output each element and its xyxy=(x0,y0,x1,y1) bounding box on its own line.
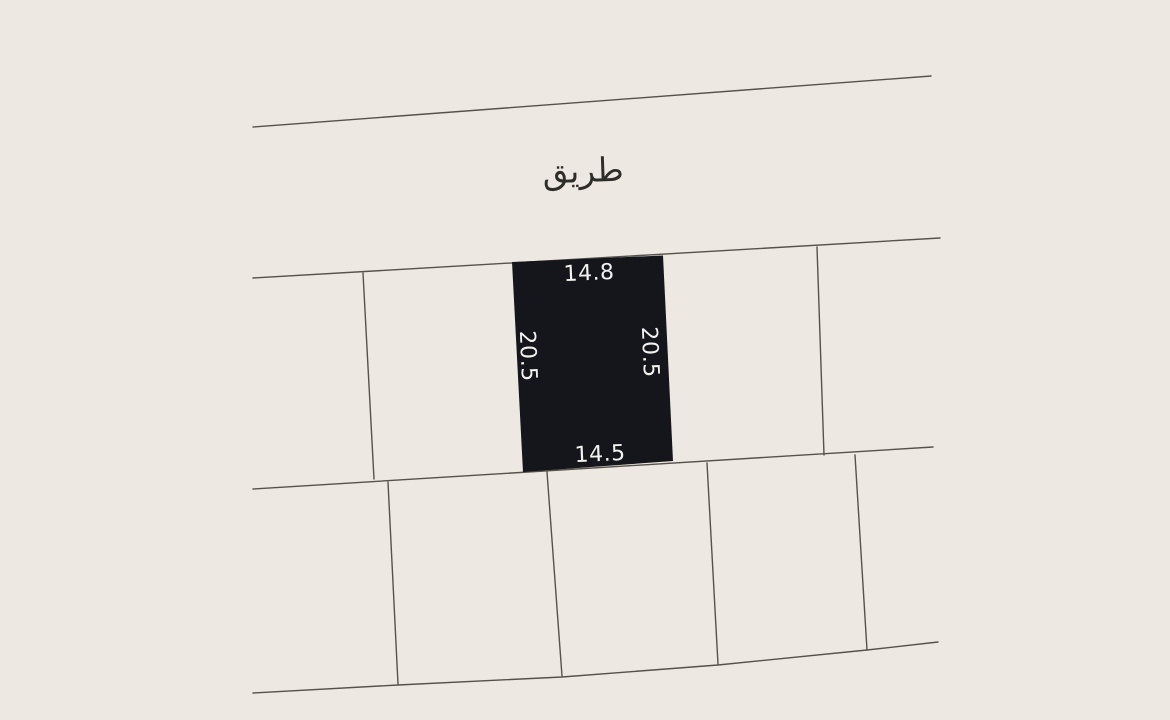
road-name-label: طريق xyxy=(542,150,625,193)
selected-parcel-bottom-dimension: 14.5 xyxy=(574,441,626,468)
map-viewport[interactable]: 14.8 20.5 20.5 14.5 طريق xyxy=(0,0,1170,720)
parcel-map-canvas[interactable]: 14.8 20.5 20.5 14.5 طريق xyxy=(0,0,1170,720)
selected-parcel-top-dimension: 14.8 xyxy=(563,260,615,287)
selected-parcel-left-dimension: 20.5 xyxy=(514,330,541,382)
selected-parcel-right-dimension: 20.5 xyxy=(636,326,663,378)
